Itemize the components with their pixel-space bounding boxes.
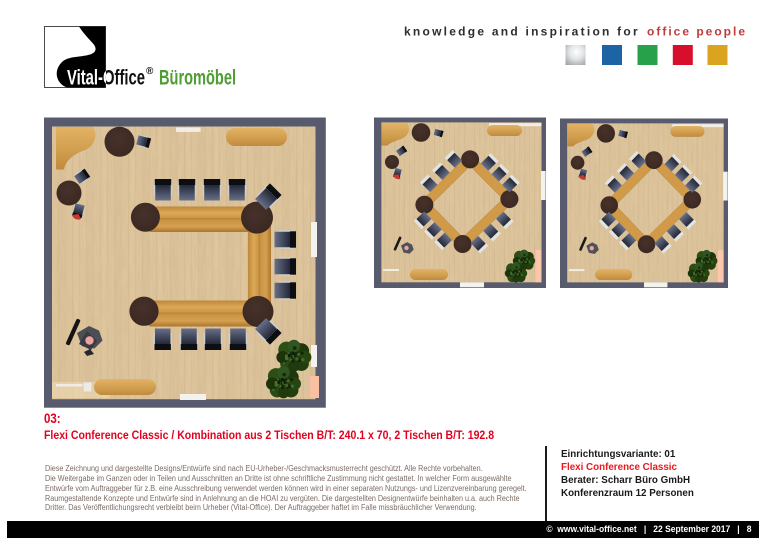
svg-text:knowledge and inspiration for: knowledge and inspiration for — [404, 25, 640, 39]
svg-text:Büromöbel: Büromöbel — [159, 67, 236, 90]
svg-text:®: ® — [146, 66, 154, 77]
svg-text:office people: office people — [647, 25, 747, 39]
